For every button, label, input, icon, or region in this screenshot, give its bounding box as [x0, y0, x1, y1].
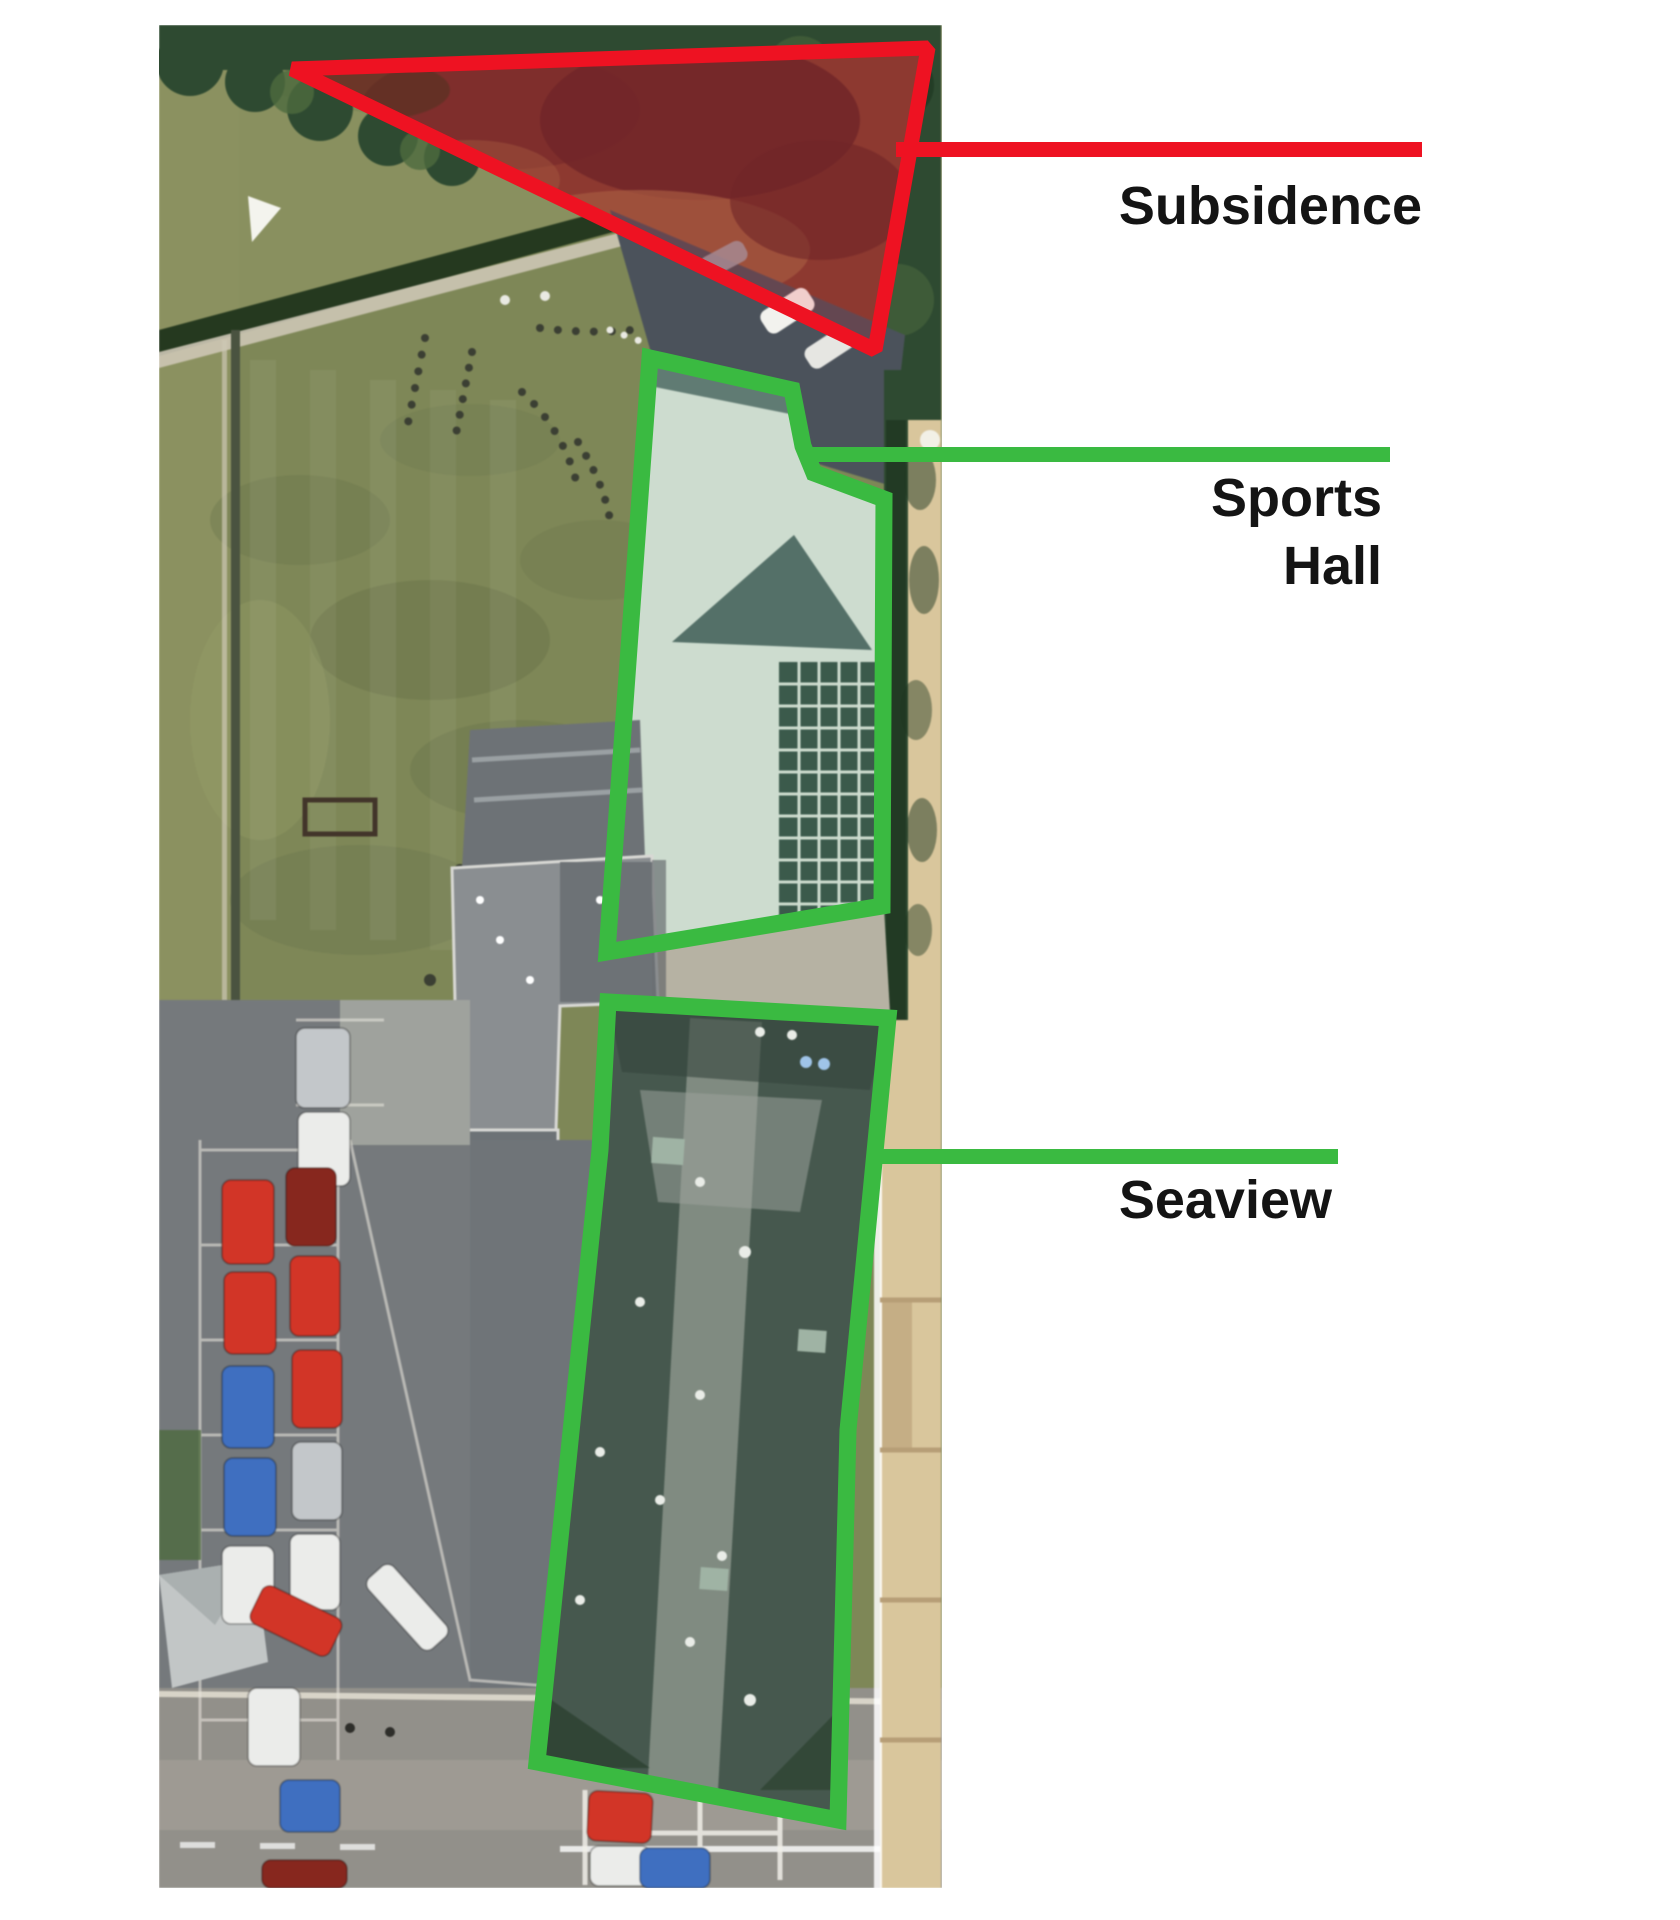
subsidence-label: Subsidence [1119, 172, 1422, 240]
sports-hall-label-line1: Sports [1211, 464, 1382, 532]
sports-hall-leader-line [804, 447, 1390, 462]
seaview-label: Seaview [1119, 1166, 1332, 1234]
sports-hall-label: Sports Hall [1211, 464, 1382, 600]
annotated-aerial-map: Subsidence Sports Hall Seaview [0, 0, 1680, 1920]
sports-hall-label-line2: Hall [1211, 532, 1382, 600]
tree-column-right [884, 370, 941, 1020]
seaview-leader-line [868, 1149, 1338, 1164]
subsidence-leader-line [896, 142, 1422, 157]
aerial-photo-scene [0, 0, 1680, 1920]
